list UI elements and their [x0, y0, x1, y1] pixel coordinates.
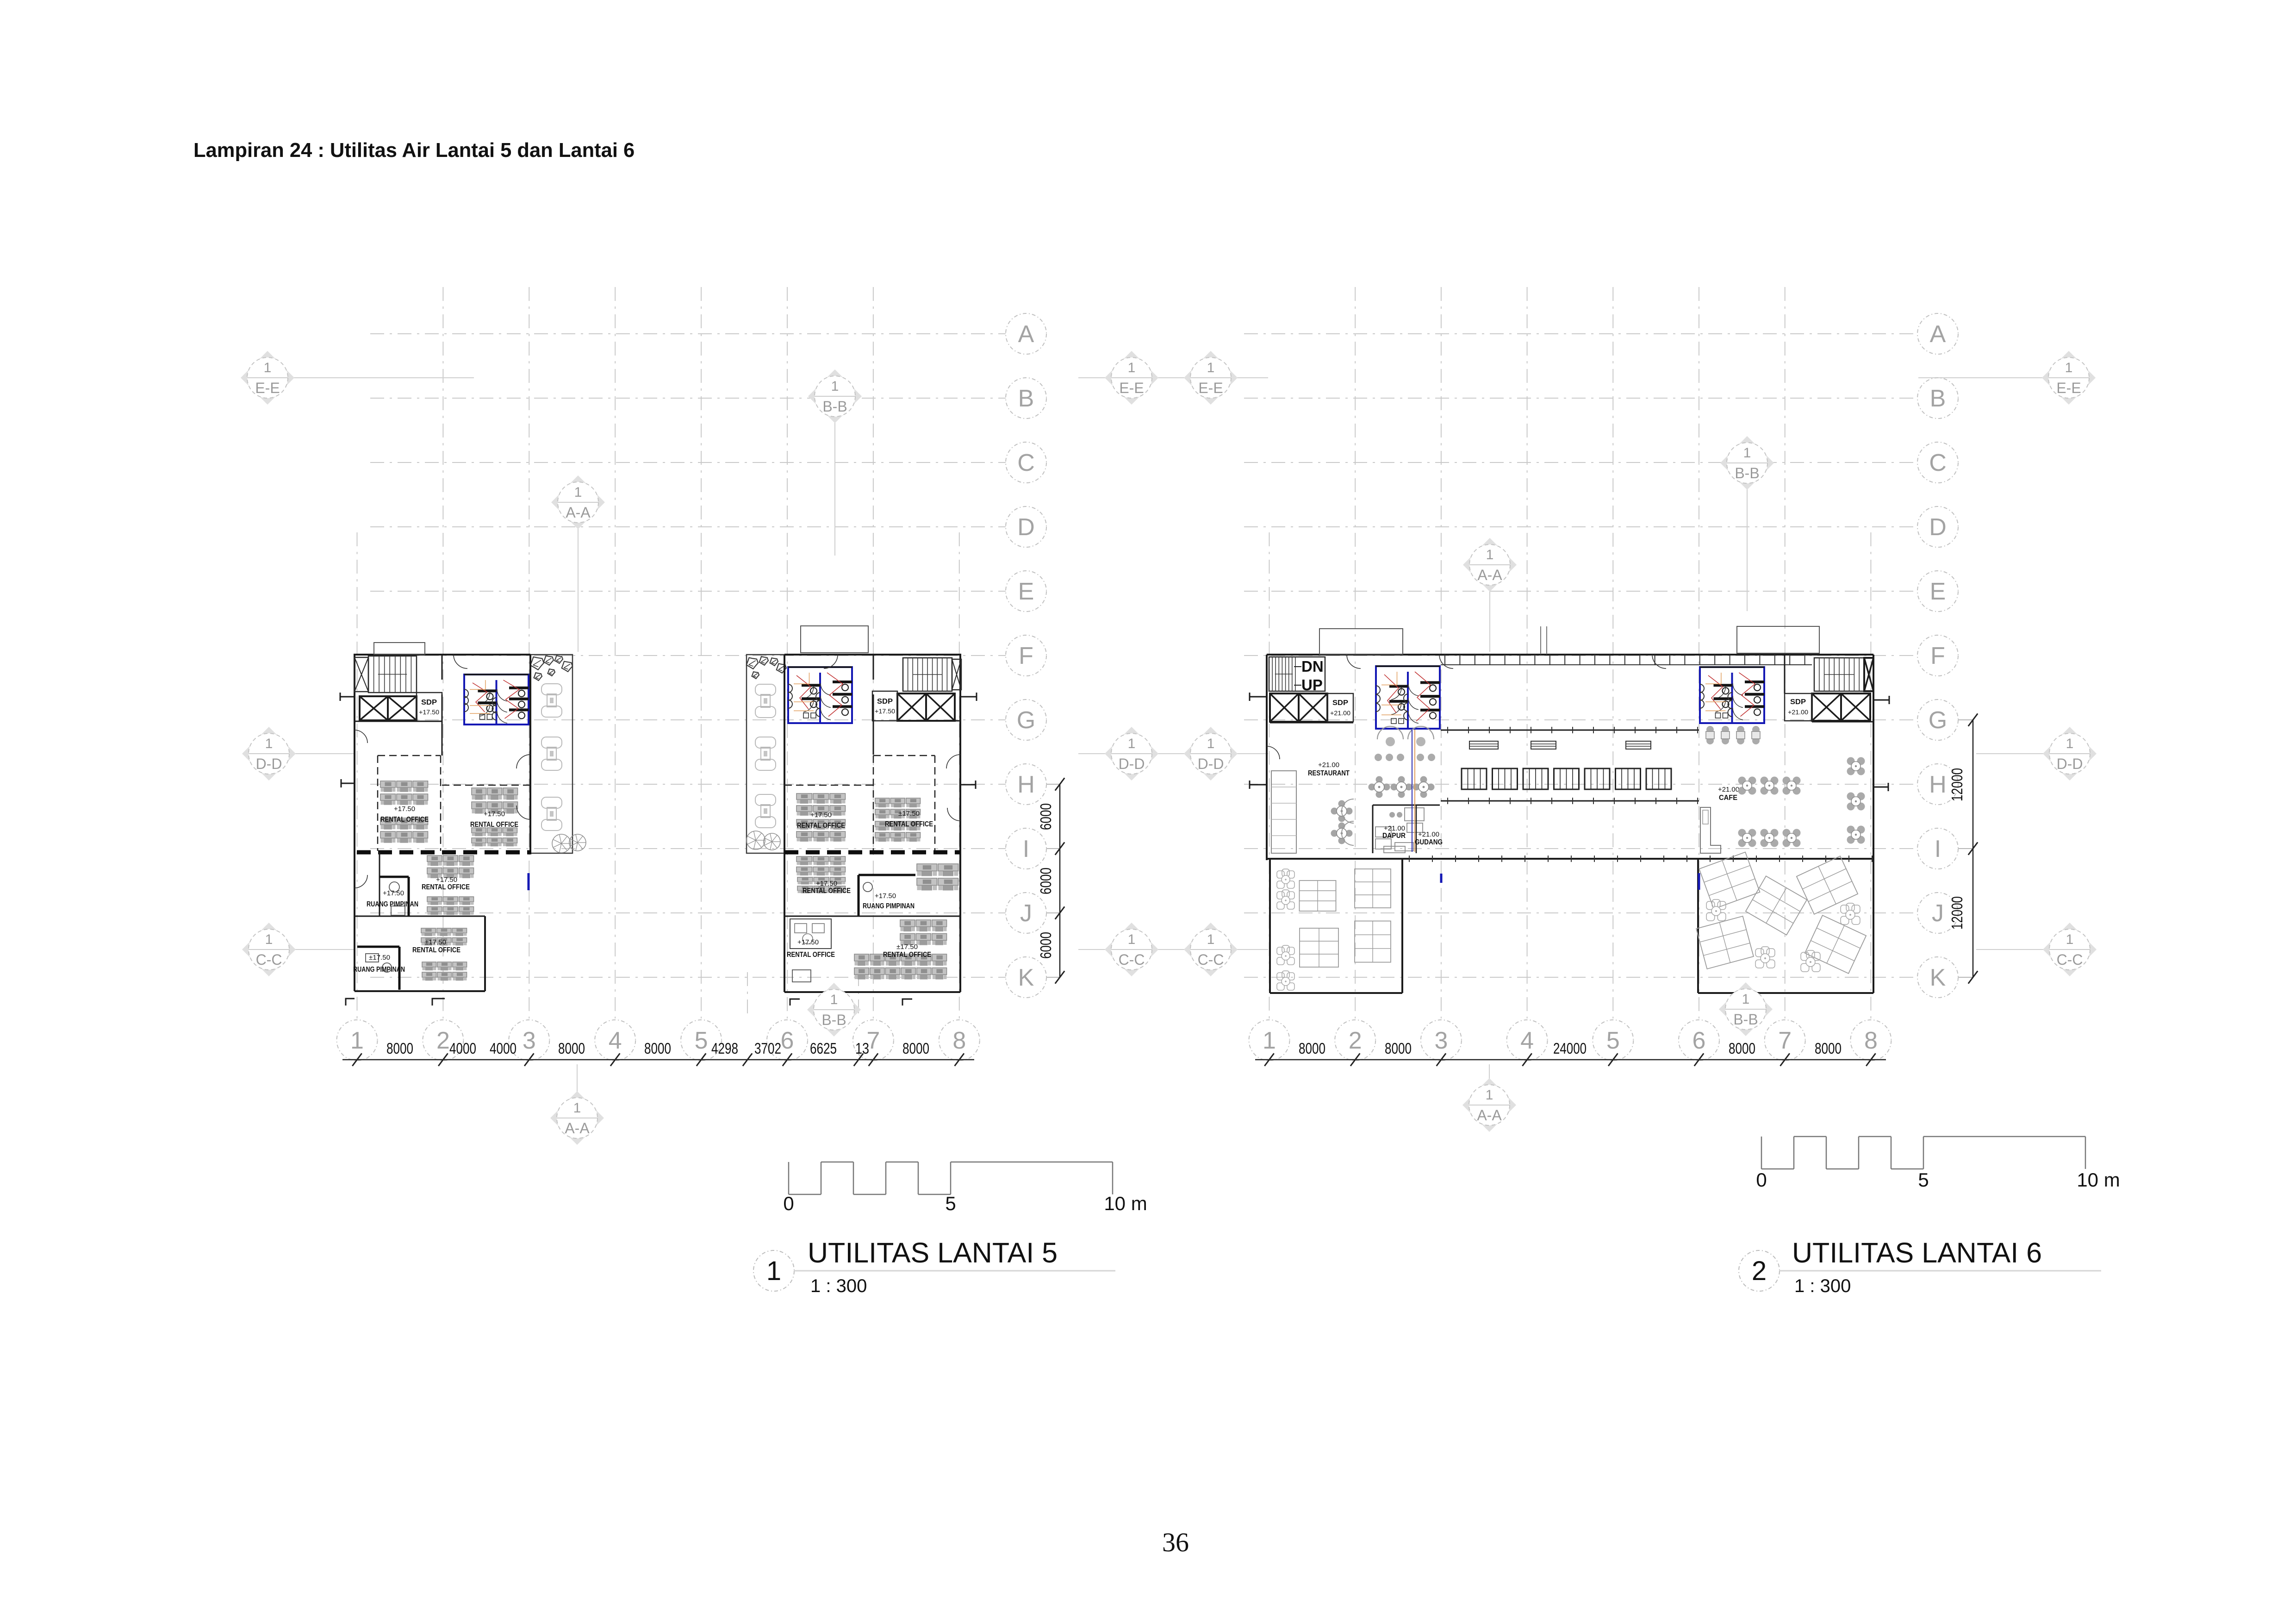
svg-text:+17.50: +17.50 — [797, 939, 819, 946]
svg-text:+21.00: +21.00 — [1318, 762, 1339, 769]
svg-text:E-E: E-E — [255, 380, 280, 396]
svg-text:F: F — [1930, 643, 1945, 669]
svg-text:A-A: A-A — [1477, 1107, 1502, 1124]
svg-text:C-C: C-C — [1198, 951, 1224, 968]
svg-text:1: 1 — [2066, 736, 2074, 751]
svg-text:+17.50: +17.50 — [875, 707, 895, 715]
svg-text:B: B — [1930, 385, 1946, 412]
svg-text:4: 4 — [609, 1027, 622, 1054]
svg-text:RENTAL OFFICE: RENTAL OFFICE — [787, 951, 835, 959]
svg-text:1: 1 — [265, 932, 273, 947]
svg-text:1 : 300: 1 : 300 — [810, 1276, 867, 1296]
svg-text:8000: 8000 — [558, 1040, 585, 1057]
svg-text:E-E: E-E — [2056, 380, 2081, 396]
svg-text:1 : 300: 1 : 300 — [1794, 1276, 1851, 1296]
svg-text:8000: 8000 — [1299, 1040, 1325, 1057]
svg-text:1: 1 — [1207, 360, 1215, 375]
svg-text:+21.00: +21.00 — [1330, 709, 1350, 717]
svg-text:1: 1 — [1486, 547, 1494, 562]
svg-text:+17.50: +17.50 — [436, 876, 457, 884]
svg-text:SDP: SDP — [1790, 698, 1806, 706]
svg-text:RENTAL OFFICE: RENTAL OFFICE — [797, 822, 845, 830]
svg-text:E: E — [1930, 578, 1946, 605]
svg-text:3: 3 — [523, 1027, 536, 1054]
svg-text:10 m: 10 m — [1104, 1193, 1147, 1214]
svg-text:UTILITAS LANTAI 5: UTILITAS LANTAI 5 — [808, 1237, 1058, 1268]
svg-text:4000: 4000 — [490, 1040, 516, 1057]
svg-text:J: J — [1932, 900, 1944, 927]
svg-text:1: 1 — [1486, 1087, 1493, 1103]
svg-text:+17.50: +17.50 — [383, 890, 404, 897]
svg-text:2: 2 — [1752, 1256, 1767, 1286]
svg-text:10 m: 10 m — [2077, 1169, 2120, 1191]
svg-text:G: G — [1929, 707, 1947, 734]
svg-text:UP: UP — [1301, 676, 1323, 693]
svg-text:CAFE: CAFE — [1719, 794, 1737, 802]
svg-text:6000: 6000 — [1037, 803, 1054, 830]
svg-text:±17.50: ±17.50 — [896, 943, 918, 951]
svg-text:1: 1 — [766, 1256, 781, 1286]
svg-text:K: K — [1018, 964, 1034, 991]
svg-text:RUANG PIMPINAN: RUANG PIMPINAN — [353, 966, 405, 974]
svg-text:UTILITAS LANTAI 6: UTILITAS LANTAI 6 — [1792, 1237, 2042, 1268]
svg-text:I: I — [1935, 836, 1941, 862]
svg-text:1: 1 — [574, 485, 582, 500]
svg-text:RESTAURANT: RESTAURANT — [1308, 769, 1350, 777]
svg-text:3702: 3702 — [754, 1040, 781, 1057]
svg-text:1: 1 — [573, 1100, 581, 1116]
svg-text:+17.50: +17.50 — [484, 811, 505, 818]
svg-text:A-A: A-A — [1477, 567, 1502, 583]
svg-text:1: 1 — [1742, 992, 1750, 1007]
svg-text:8000: 8000 — [1729, 1040, 1755, 1057]
svg-text:12000: 12000 — [1948, 896, 1966, 930]
svg-text:8000: 8000 — [902, 1040, 929, 1057]
svg-text:SDP: SDP — [1332, 699, 1348, 707]
svg-text:A: A — [1930, 321, 1946, 348]
svg-text:5: 5 — [1606, 1027, 1620, 1054]
svg-text:H: H — [1017, 771, 1035, 798]
svg-text:D-D: D-D — [1119, 756, 1145, 772]
svg-text:8000: 8000 — [386, 1040, 413, 1057]
svg-text:1: 1 — [1128, 736, 1136, 751]
svg-text:1: 1 — [830, 992, 838, 1007]
svg-text:K: K — [1930, 964, 1946, 991]
svg-text:RENTAL OFFICE: RENTAL OFFICE — [803, 887, 851, 895]
svg-text:F: F — [1019, 643, 1033, 669]
svg-text:C-C: C-C — [1119, 951, 1145, 968]
svg-text:13: 13 — [855, 1040, 869, 1057]
svg-text:12000: 12000 — [1948, 768, 1966, 801]
svg-text:1: 1 — [1128, 360, 1136, 375]
svg-text:DAPUR: DAPUR — [1382, 832, 1406, 840]
svg-text:±17.50: ±17.50 — [898, 810, 920, 818]
svg-text:D: D — [1017, 514, 1035, 541]
svg-text:4000: 4000 — [449, 1040, 476, 1057]
svg-text:0: 0 — [783, 1193, 794, 1214]
svg-text:RENTAL OFFICE: RENTAL OFFICE — [412, 946, 460, 954]
svg-text:8000: 8000 — [1385, 1040, 1412, 1057]
svg-text:6: 6 — [1692, 1027, 1706, 1054]
svg-text:1: 1 — [1128, 932, 1136, 947]
svg-text:D: D — [1929, 514, 1947, 541]
svg-text:6000: 6000 — [1037, 868, 1054, 894]
svg-text:RUANG PIMPINAN: RUANG PIMPINAN — [367, 900, 418, 908]
svg-text:4: 4 — [1520, 1027, 1534, 1054]
svg-text:+17.50: +17.50 — [419, 708, 439, 716]
svg-text:+17.50: +17.50 — [394, 806, 415, 813]
svg-text:1: 1 — [2066, 932, 2074, 947]
svg-text:2: 2 — [436, 1027, 450, 1054]
svg-text:B-B: B-B — [822, 398, 847, 415]
svg-text:1: 1 — [1263, 1027, 1276, 1054]
svg-text:J: J — [1020, 900, 1032, 927]
svg-text:+17.50: +17.50 — [875, 893, 896, 900]
svg-text:2: 2 — [1349, 1027, 1362, 1054]
svg-text:6000: 6000 — [1037, 932, 1054, 959]
svg-text:±17.50: ±17.50 — [425, 939, 446, 946]
svg-text:SDP: SDP — [421, 699, 437, 706]
svg-text:RENTAL OFFICE: RENTAL OFFICE — [885, 820, 933, 828]
svg-text:3: 3 — [1434, 1027, 1448, 1054]
svg-text:C-C: C-C — [256, 951, 282, 968]
svg-text:D-D: D-D — [256, 756, 282, 772]
svg-text:+17.50: +17.50 — [816, 880, 837, 887]
svg-text:B: B — [1018, 385, 1034, 412]
svg-text:7: 7 — [1778, 1027, 1792, 1054]
svg-text:4298: 4298 — [711, 1040, 738, 1057]
svg-text:8: 8 — [952, 1027, 966, 1054]
svg-text:1: 1 — [831, 379, 839, 394]
svg-text:B-B: B-B — [1733, 1011, 1758, 1028]
svg-text:A-A: A-A — [565, 1120, 590, 1137]
svg-text:D-D: D-D — [2057, 756, 2083, 772]
svg-text:E-E: E-E — [1119, 380, 1144, 396]
svg-text:5: 5 — [945, 1193, 956, 1214]
svg-text:5: 5 — [695, 1027, 708, 1054]
svg-text:8000: 8000 — [1815, 1040, 1842, 1057]
svg-text:6625: 6625 — [810, 1040, 837, 1057]
svg-text:36: 36 — [1162, 1527, 1189, 1557]
svg-text:1: 1 — [264, 360, 272, 375]
svg-text:RENTAL OFFICE: RENTAL OFFICE — [380, 816, 429, 824]
svg-text:+21.00: +21.00 — [1788, 708, 1808, 716]
svg-text:D-D: D-D — [1198, 756, 1224, 772]
svg-text:1: 1 — [2065, 360, 2073, 375]
svg-text:1: 1 — [265, 736, 273, 751]
svg-text:RUANG PIMPINAN: RUANG PIMPINAN — [863, 902, 915, 910]
svg-text:6: 6 — [781, 1027, 794, 1054]
svg-text:C-C: C-C — [2057, 951, 2083, 968]
svg-text:SDP: SDP — [877, 698, 893, 706]
svg-text:5: 5 — [1918, 1169, 1929, 1191]
svg-text:RENTAL OFFICE: RENTAL OFFICE — [470, 821, 518, 829]
svg-text:0: 0 — [1756, 1169, 1767, 1191]
svg-text:±17.50: ±17.50 — [369, 954, 390, 962]
svg-text:B-B: B-B — [821, 1012, 846, 1028]
svg-text:+21.00: +21.00 — [1384, 825, 1405, 832]
svg-text:1: 1 — [350, 1027, 364, 1054]
svg-text:E: E — [1018, 578, 1034, 605]
svg-text:1: 1 — [1207, 932, 1215, 947]
svg-text:A-A: A-A — [566, 504, 591, 521]
svg-text:8000: 8000 — [644, 1040, 671, 1057]
svg-text:C: C — [1017, 450, 1035, 476]
svg-text:24000: 24000 — [1553, 1040, 1587, 1057]
svg-text:8: 8 — [1864, 1027, 1878, 1054]
svg-text:E-E: E-E — [1198, 380, 1223, 396]
svg-text:1: 1 — [1743, 445, 1751, 461]
svg-text:+17.50: +17.50 — [810, 812, 832, 819]
svg-text:A: A — [1018, 321, 1034, 348]
svg-text:G: G — [1017, 707, 1035, 734]
svg-text:DN: DN — [1301, 658, 1324, 675]
svg-text:Lampiran 24 : Utilitas Air Lan: Lampiran 24 : Utilitas Air Lantai 5 dan … — [193, 139, 635, 162]
svg-text:I: I — [1023, 836, 1029, 862]
svg-text:GUDANG: GUDANG — [1415, 838, 1443, 846]
svg-text:H: H — [1929, 771, 1947, 798]
svg-text:+21.00: +21.00 — [1418, 831, 1439, 838]
svg-text:1: 1 — [1207, 736, 1215, 751]
svg-text:+21.00: +21.00 — [1718, 786, 1739, 793]
svg-text:B-B: B-B — [1735, 465, 1759, 481]
svg-text:RENTAL OFFICE: RENTAL OFFICE — [883, 951, 931, 959]
svg-text:C: C — [1929, 450, 1947, 476]
svg-text:RENTAL OFFICE: RENTAL OFFICE — [422, 883, 470, 891]
